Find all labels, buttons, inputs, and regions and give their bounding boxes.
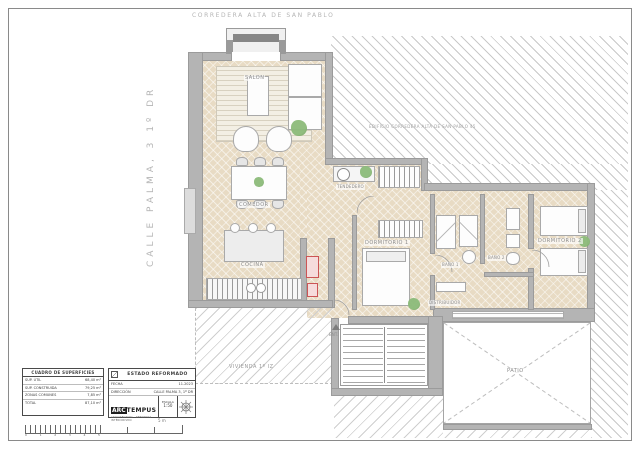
address-row: DIRECCIÓN CALLE PALMA 3, 1º DR [109,389,195,397]
wall [587,183,595,322]
table-row: ZONAS COMUNES 7,85 m² [23,392,103,400]
project-title-block: ESTADO REFORMADO FECHA 11.2023 DIRECCIÓN… [108,368,196,418]
chair [254,157,266,166]
staircase [340,324,428,386]
logo-tagline: ARQUITECTURA · REFORMAS · INTERIORISMO [111,416,156,422]
gallery-window [452,311,564,319]
door-arc [532,250,550,268]
scale-unit-label: 5 m [158,418,166,423]
plan-state: ESTADO REFORMADO [120,372,195,377]
room-label-bano2: BAÑO 2 [487,255,506,261]
pillow [578,209,586,233]
wall [328,238,335,308]
room-label-bano1: BAÑO 1 [441,262,460,268]
stool [248,223,258,233]
wall [325,52,333,164]
bathroom-sink [506,234,520,248]
entry-label: ENT. [328,332,340,338]
wall [484,272,534,277]
room-label-tendedero: TENDEDERO [336,184,365,190]
plant-icon [408,298,420,310]
washing-machine-icon [337,168,350,181]
room-label-dormitorio1: DORMITORIO 1 [364,240,410,246]
room-label-patio: PATIO [506,368,525,374]
neighbor-hatch-bottom [334,394,443,438]
drying-rack [378,166,420,188]
armchair [266,126,292,152]
entry-marker-icon [332,324,340,330]
toilet [506,252,520,265]
sink-icon [246,283,256,293]
wardrobe [378,220,423,238]
balcony-railing [233,34,279,42]
state-icon [111,371,118,378]
stool [230,223,240,233]
pillow [578,250,586,273]
room-label-distribuidor: DISTRIBUIDOR [428,300,461,306]
room-label-cocina: COCINA [240,262,265,268]
plant-icon [360,166,372,178]
sink-icon [256,283,266,293]
stool [266,223,276,233]
wall [348,316,433,324]
graphic-scale: 0 1 2 3 4 5 5 m [25,424,183,436]
chair [236,157,248,166]
neighbor-flat-label: VIVIENDA 1º IZ [228,364,275,370]
bath-cabinet [506,208,520,230]
surfaces-table-header: CUADRO DE SUPERFICIES [23,369,103,377]
coffee-table [247,76,269,116]
street-name-top: CORREDERA ALTA DE SAN PABLO [192,12,334,19]
neighbor-building-hatch [331,36,628,164]
facade-window [184,188,196,234]
compass-icon [179,400,193,414]
wall [424,183,595,191]
sofa [288,64,322,97]
wall [352,215,357,310]
wall [430,194,435,254]
boiler-icon [307,283,318,297]
table-row: TOTAL 87,10 m² [23,400,103,407]
neighbor-flat-hatch [195,308,333,384]
compass-cell [178,396,195,417]
pillow [366,251,406,262]
boiler-icon [306,256,319,278]
surfaces-table: CUADRO DE SUPERFICIES SUP. ÚTIL 68,40 m²… [22,368,104,416]
room-label-dormitorio2: DORMITORIO 2 [537,238,583,244]
neighbor-building-hatch [591,190,628,438]
plant-icon [254,177,264,187]
table-row: SUP. ÚTIL 68,40 m² [23,377,103,385]
chair [272,200,284,209]
table-row: SUP. CONSTRUIDA 79,25 m² [23,385,103,393]
kitchen-island [224,230,284,262]
floorplan-sheet: EDIFICIO CORREDERA ALTA DE SAN PABLO 45 … [0,0,640,453]
shower [459,215,478,247]
plant-icon [291,120,307,136]
neighbor-building-label: EDIFICIO CORREDERA ALTA DE SAN PABLO 45 [368,124,477,130]
wall [325,158,428,165]
wall [480,194,485,264]
balcony-door-opening [231,52,281,61]
wall [331,388,443,396]
chair [272,157,284,166]
date-row: FECHA 11.2023 [109,381,195,389]
armchair [233,126,259,152]
wall [528,194,534,249]
door-arc [357,196,375,214]
wall [188,300,333,308]
shower [436,215,456,249]
street-name-left: CALLE PALMA, 3 1º DR [146,42,156,267]
room-label-comedor: COMEDOR [238,202,270,208]
room-label-salon: SALON [244,75,265,81]
door-arc [334,300,350,316]
toilet [462,250,476,264]
wall [188,52,203,308]
scale-cell: ESCALA 1:50 [159,396,177,417]
logo: ARCTEMPUS ARQUITECTURA · REFORMAS · INTE… [109,396,159,417]
bathroom-sink [436,282,466,292]
wall [428,316,443,396]
